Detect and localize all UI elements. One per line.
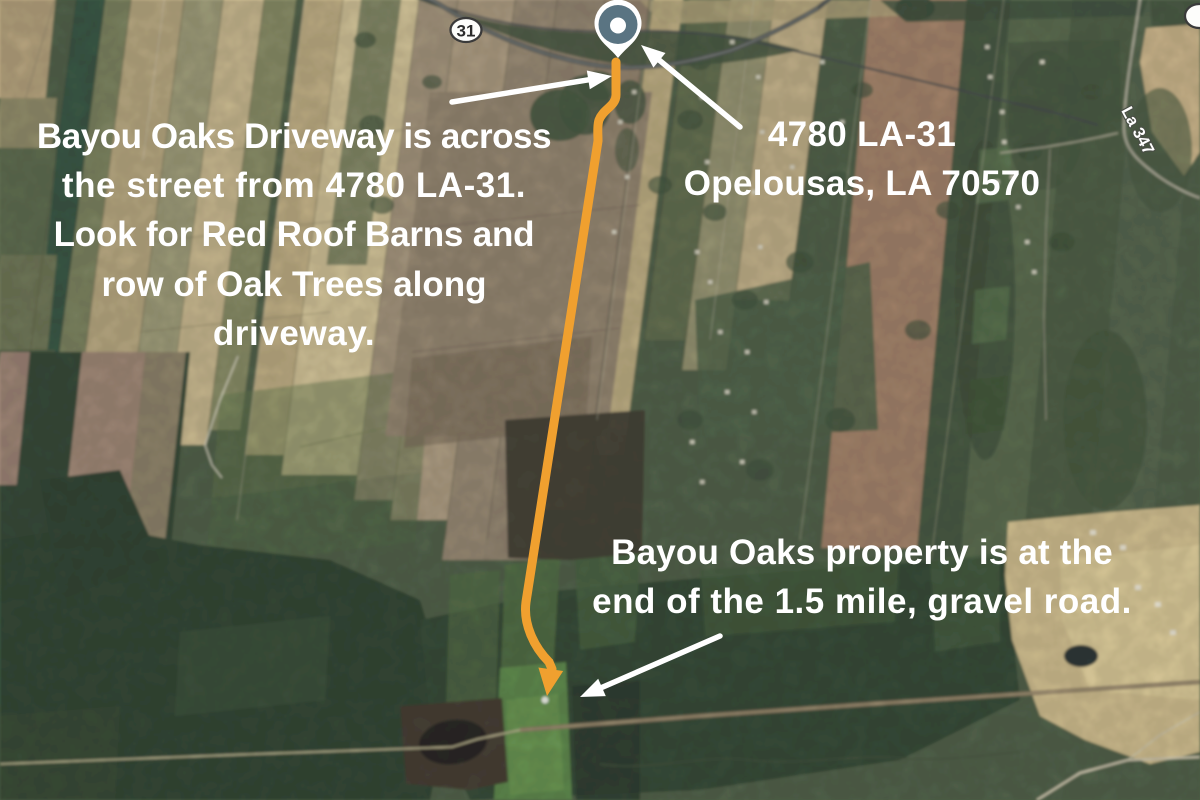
svg-text:31: 31: [457, 22, 476, 41]
